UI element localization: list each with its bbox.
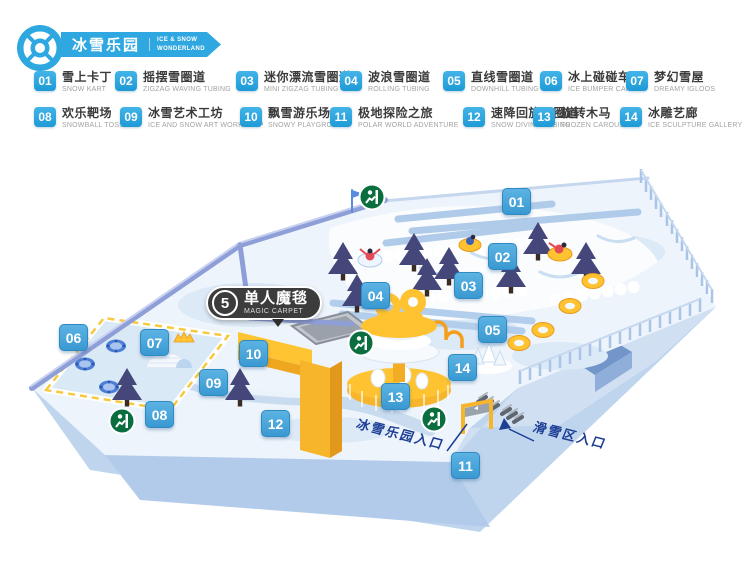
legend-item-07: 07 梦幻雪屋DREAMY IGLOOS xyxy=(626,71,715,93)
bumper-car xyxy=(99,381,119,394)
legend-badge: 02 xyxy=(115,71,137,91)
map-marker-14: 14 xyxy=(448,354,477,381)
map-marker-05: 05 xyxy=(478,316,507,343)
map-marker-06: 06 xyxy=(59,324,88,351)
magic-carpet-label: 5 单人魔毯 MAGIC CARPET xyxy=(206,286,322,320)
emergency-exit-icon xyxy=(108,407,136,435)
legend-badge: 09 xyxy=(120,107,142,127)
map-marker-10: 10 xyxy=(239,340,268,367)
map-marker-13: 13 xyxy=(381,383,410,410)
magic-carpet-name-zh: 单人魔毯 xyxy=(244,291,308,306)
legend-item-11: 11 极地探险之旅POLAR WORLD ADVENTURE xyxy=(330,107,459,129)
legend-item-14: 14 冰雕艺廊ICE SCULPTURE GALLERY xyxy=(620,107,742,129)
map-marker-08: 08 xyxy=(145,401,174,428)
legend-item-04: 04 波浪雪圈道ROLLING TUBING xyxy=(340,71,431,93)
legend-item-02: 02 摇摆雪圈道ZIGZAG WAVING TUBING xyxy=(115,71,231,93)
legend-item-06: 06 冰上碰碰车ICE BUMPER CARS xyxy=(540,71,636,93)
legend-badge: 06 xyxy=(540,71,562,91)
legend-badge: 05 xyxy=(443,71,465,91)
legend-badge: 10 xyxy=(240,107,262,127)
magic-carpet-name-en: MAGIC CARPET xyxy=(244,308,308,315)
map-marker-12: 12 xyxy=(261,410,290,437)
park-title-zh: 冰雪乐园 xyxy=(72,34,140,55)
banner-divider xyxy=(149,38,150,51)
legend-item-05: 05 直线雪圈道DOWNHILL TUBING xyxy=(443,71,539,93)
label-pointer xyxy=(272,319,284,327)
legend-item-13: 13 旋转木马FROZEN CAROUSEL xyxy=(533,107,633,129)
bumper-car xyxy=(106,340,126,353)
legend-item-01: 01 雪上卡丁SNOW KART xyxy=(34,71,112,93)
map-marker-01: 01 xyxy=(502,188,531,215)
legend-item-08: 08 欢乐靶场SNOWBALL TOSS xyxy=(34,107,124,129)
park-map-page: 冰雪乐园 ICE & SNOW WONDERLAND 01 雪上卡丁SNOW K… xyxy=(0,0,750,571)
title-banner: 冰雪乐园 ICE & SNOW WONDERLAND xyxy=(61,32,221,57)
legend-badge: 14 xyxy=(620,107,642,127)
map-marker-04: 04 xyxy=(361,282,390,309)
emergency-exit-icon xyxy=(358,183,386,211)
map-marker-11: 11 xyxy=(451,452,480,479)
legend-badge: 08 xyxy=(34,107,56,127)
legend-badge: 07 xyxy=(626,71,648,91)
emergency-exit-icon xyxy=(347,329,375,357)
map-marker-03: 03 xyxy=(454,272,483,299)
map-marker-09: 09 xyxy=(199,369,228,396)
legend-badge: 01 xyxy=(34,71,56,91)
magic-carpet-number: 5 xyxy=(212,290,238,316)
legend-item-03: 03 迷你漂流雪圈道MINI ZIGZAG TUBING xyxy=(236,71,352,93)
map-marker-07: 07 xyxy=(140,329,169,356)
legend-badge: 04 xyxy=(340,71,362,91)
legend-badge: 12 xyxy=(463,107,485,127)
life-ring-logo-icon xyxy=(16,24,64,72)
legend-badge: 13 xyxy=(533,107,555,127)
legend-badge: 03 xyxy=(236,71,258,91)
legend-badge: 11 xyxy=(330,107,352,127)
map-marker-02: 02 xyxy=(488,243,517,270)
park-title-en: ICE & SNOW WONDERLAND xyxy=(157,36,205,52)
